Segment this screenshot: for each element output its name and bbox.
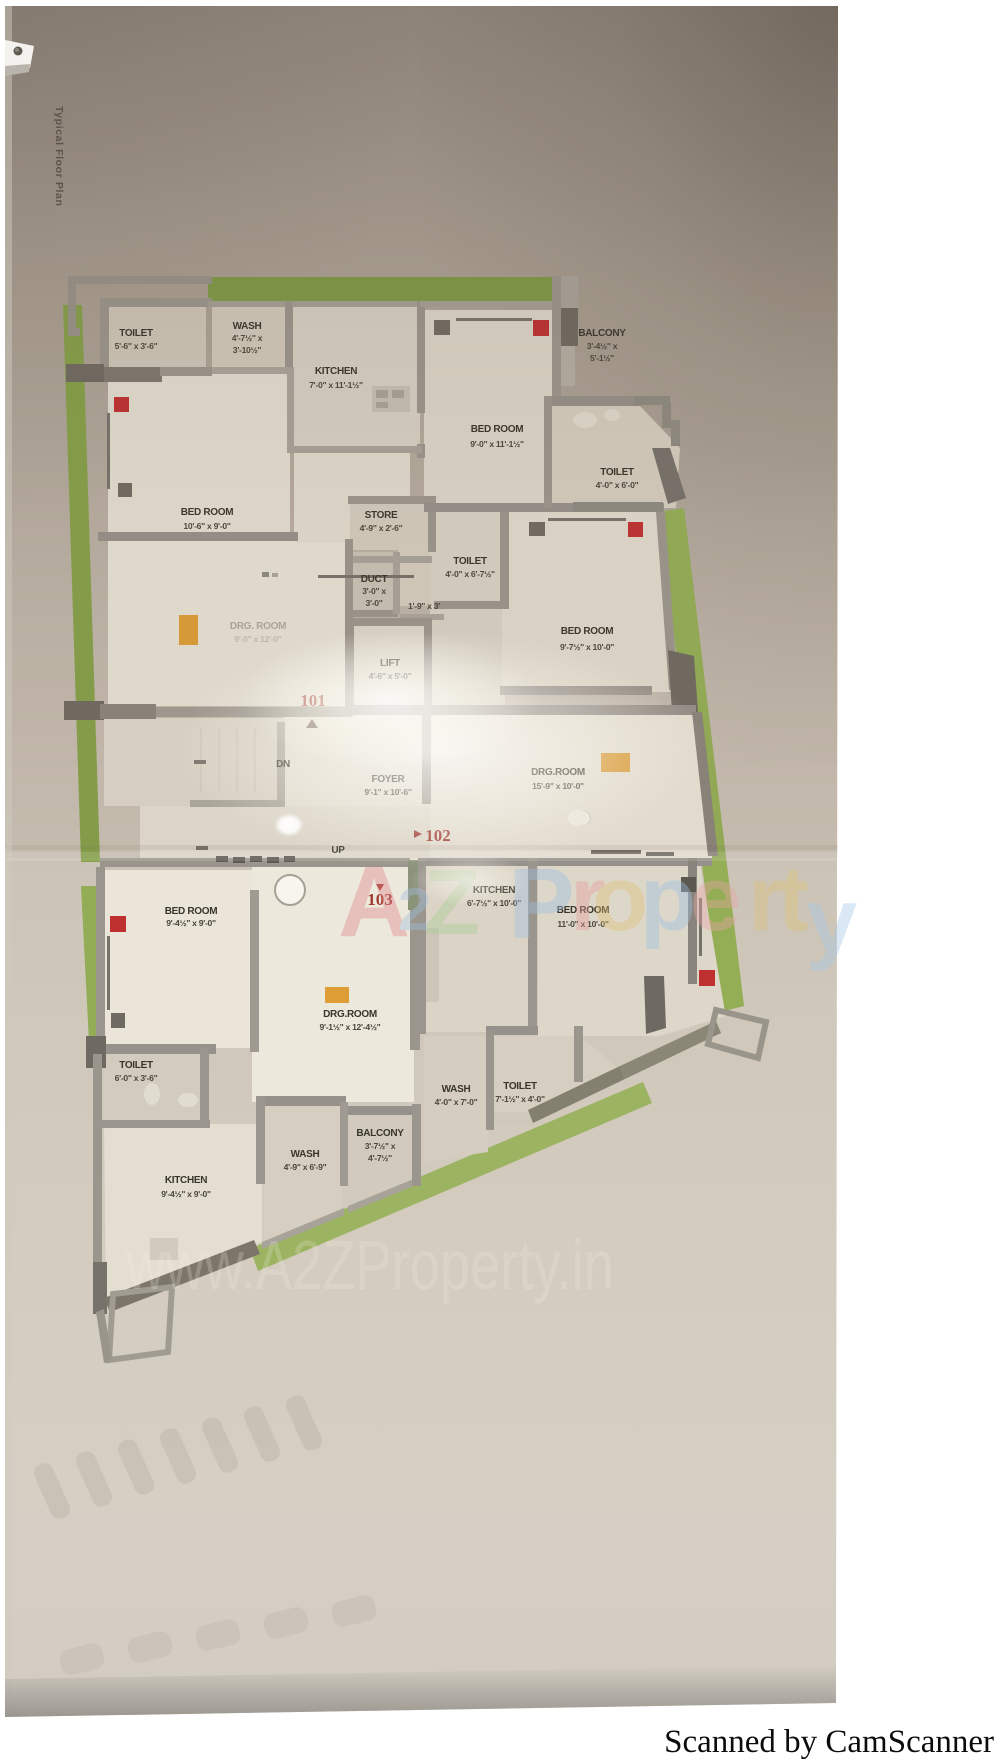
svg-text:y: y xyxy=(806,870,857,972)
svg-text:4'-0" x 7'-0": 4'-0" x 7'-0" xyxy=(435,1097,478,1107)
svg-text:7'-1½" x 4'-0": 7'-1½" x 4'-0" xyxy=(495,1094,545,1104)
svg-text:6'-0" x 3'-6": 6'-0" x 3'-6" xyxy=(115,1073,158,1083)
svg-text:WASH: WASH xyxy=(442,1084,471,1095)
svg-text:9'-4½" x 9'-0": 9'-4½" x 9'-0" xyxy=(166,918,216,928)
svg-text:9'-1½" x 12'-4½": 9'-1½" x 12'-4½" xyxy=(320,1022,381,1032)
svg-text:4'-7½": 4'-7½" xyxy=(368,1153,392,1163)
svg-text:TOILET: TOILET xyxy=(119,1060,153,1071)
svg-text:9'-4½" x 9'-0": 9'-4½" x 9'-0" xyxy=(161,1189,211,1199)
svg-text:WASH: WASH xyxy=(291,1149,320,1160)
svg-text:3'-7½" x: 3'-7½" x xyxy=(365,1141,396,1151)
svg-text:DRG.ROOM: DRG.ROOM xyxy=(323,1009,377,1020)
svg-text:4'-9" x 6'-9": 4'-9" x 6'-9" xyxy=(284,1162,327,1172)
svg-text:e: e xyxy=(690,848,741,950)
svg-text:p: p xyxy=(640,848,696,950)
svg-text:BALCONY: BALCONY xyxy=(356,1128,404,1139)
svg-text:KITCHEN: KITCHEN xyxy=(165,1175,207,1186)
svg-text:BED ROOM: BED ROOM xyxy=(165,906,218,917)
svg-text:Typical Floor Plan: Typical Floor Plan xyxy=(53,106,65,206)
svg-text:www.A2ZProperty.in: www.A2ZProperty.in xyxy=(125,1226,614,1304)
svg-text:TOILET: TOILET xyxy=(503,1081,537,1092)
svg-text:Scanned by CamScanner: Scanned by CamScanner xyxy=(664,1724,994,1760)
svg-text:t: t xyxy=(778,848,809,950)
